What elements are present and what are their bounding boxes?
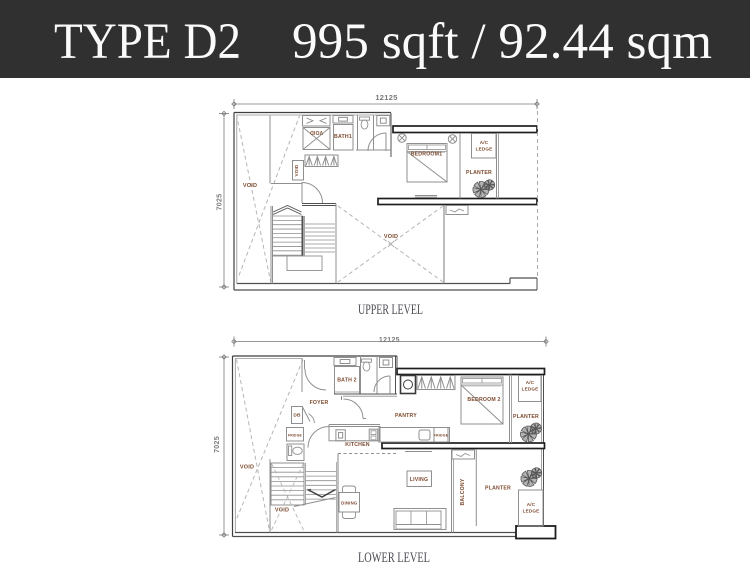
svg-text:LEDGE: LEDGE (523, 509, 540, 514)
svg-text:BEDROOM 2: BEDROOM 2 (467, 397, 500, 403)
svg-text:BATH1: BATH1 (334, 134, 352, 140)
svg-text:FRIDGE: FRIDGE (434, 434, 449, 438)
svg-text:7025: 7025 (217, 194, 224, 211)
svg-text:VOID: VOID (294, 164, 299, 177)
svg-text:PLANTER: PLANTER (485, 486, 511, 492)
svg-text:PLANTER: PLANTER (513, 414, 539, 420)
svg-text:995 sqft / 92.44 sqm: 995 sqft / 92.44 sqm (292, 13, 712, 69)
svg-text:BATH 2: BATH 2 (337, 378, 357, 384)
svg-text:A/C: A/C (480, 140, 489, 145)
svg-text:A/C: A/C (527, 502, 536, 507)
svg-text:A/C: A/C (526, 380, 535, 385)
svg-text:LIVING: LIVING (410, 477, 429, 483)
svg-text:12125: 12125 (379, 337, 400, 344)
svg-text:DB: DB (293, 413, 301, 419)
svg-text:LOWER LEVEL: LOWER LEVEL (358, 550, 430, 566)
svg-text:KITCHEN: KITCHEN (345, 442, 370, 448)
svg-text:FRIDGE: FRIDGE (288, 434, 303, 438)
svg-text:LEDGE: LEDGE (476, 147, 493, 152)
svg-text:7025: 7025 (214, 436, 221, 453)
svg-text:BEDROOM1: BEDROOM1 (411, 152, 443, 158)
svg-text:12125: 12125 (375, 93, 397, 102)
svg-text:TYPE D2: TYPE D2 (54, 13, 241, 69)
svg-text:FOYER: FOYER (310, 400, 329, 406)
svg-text:VOID: VOID (384, 234, 398, 240)
svg-text:VOID: VOID (240, 465, 254, 471)
svg-text:UPPER LEVEL: UPPER LEVEL (358, 302, 423, 318)
svg-text:PLANTER: PLANTER (466, 170, 492, 176)
svg-text:VOID: VOID (310, 129, 323, 135)
svg-text:DINING: DINING (341, 501, 358, 506)
svg-text:BALCONY: BALCONY (460, 478, 466, 505)
svg-text:VOID: VOID (243, 183, 257, 189)
svg-text:LEDGE: LEDGE (522, 387, 539, 392)
svg-text:PANTRY: PANTRY (395, 413, 417, 419)
